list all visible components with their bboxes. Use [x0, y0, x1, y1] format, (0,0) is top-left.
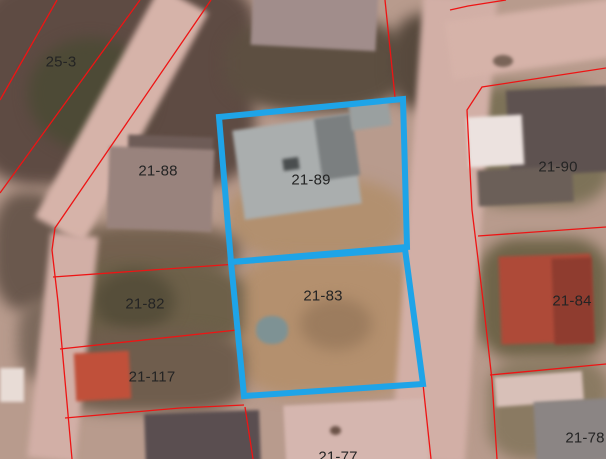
parcel-overlay	[0, 0, 606, 459]
parcel-label-25-3: 25-3	[46, 55, 77, 70]
parcel-label-21-82: 21-82	[125, 297, 164, 312]
parcel-boundary-line	[490, 364, 606, 375]
parcel-label-21-88: 21-88	[138, 164, 177, 179]
parcel-label-21-89: 21-89	[291, 173, 330, 188]
highlighted-parcels	[219, 99, 423, 396]
parcel-boundary-line	[245, 407, 253, 459]
parcel-boundary-line	[450, 0, 506, 10]
parcel-boundary-line	[0, 0, 140, 193]
parcel-label-21-77: 21-77	[318, 450, 357, 459]
highlighted-parcel-21-83[interactable]	[231, 249, 423, 396]
parcel-boundary-line	[467, 68, 606, 459]
parcel-label-21-78: 21-78	[565, 431, 604, 446]
map-canvas[interactable]: 25-3 21-88 21-89 21-90 21-82 21-83 21-84…	[0, 0, 606, 459]
parcel-boundary-line	[0, 0, 57, 100]
parcel-label-21-117: 21-117	[129, 370, 176, 385]
parcel-label-21-90: 21-90	[538, 160, 577, 175]
parcel-label-21-83: 21-83	[303, 289, 342, 304]
parcel-boundary-line	[53, 264, 237, 277]
parcel-boundary-line	[478, 227, 606, 236]
parcel-label-21-84: 21-84	[552, 294, 591, 309]
parcel-boundary-line	[423, 384, 431, 459]
parcel-boundary-line	[60, 330, 237, 349]
parcel-boundary-line	[385, 0, 395, 97]
parcel-boundary-line	[65, 405, 244, 418]
